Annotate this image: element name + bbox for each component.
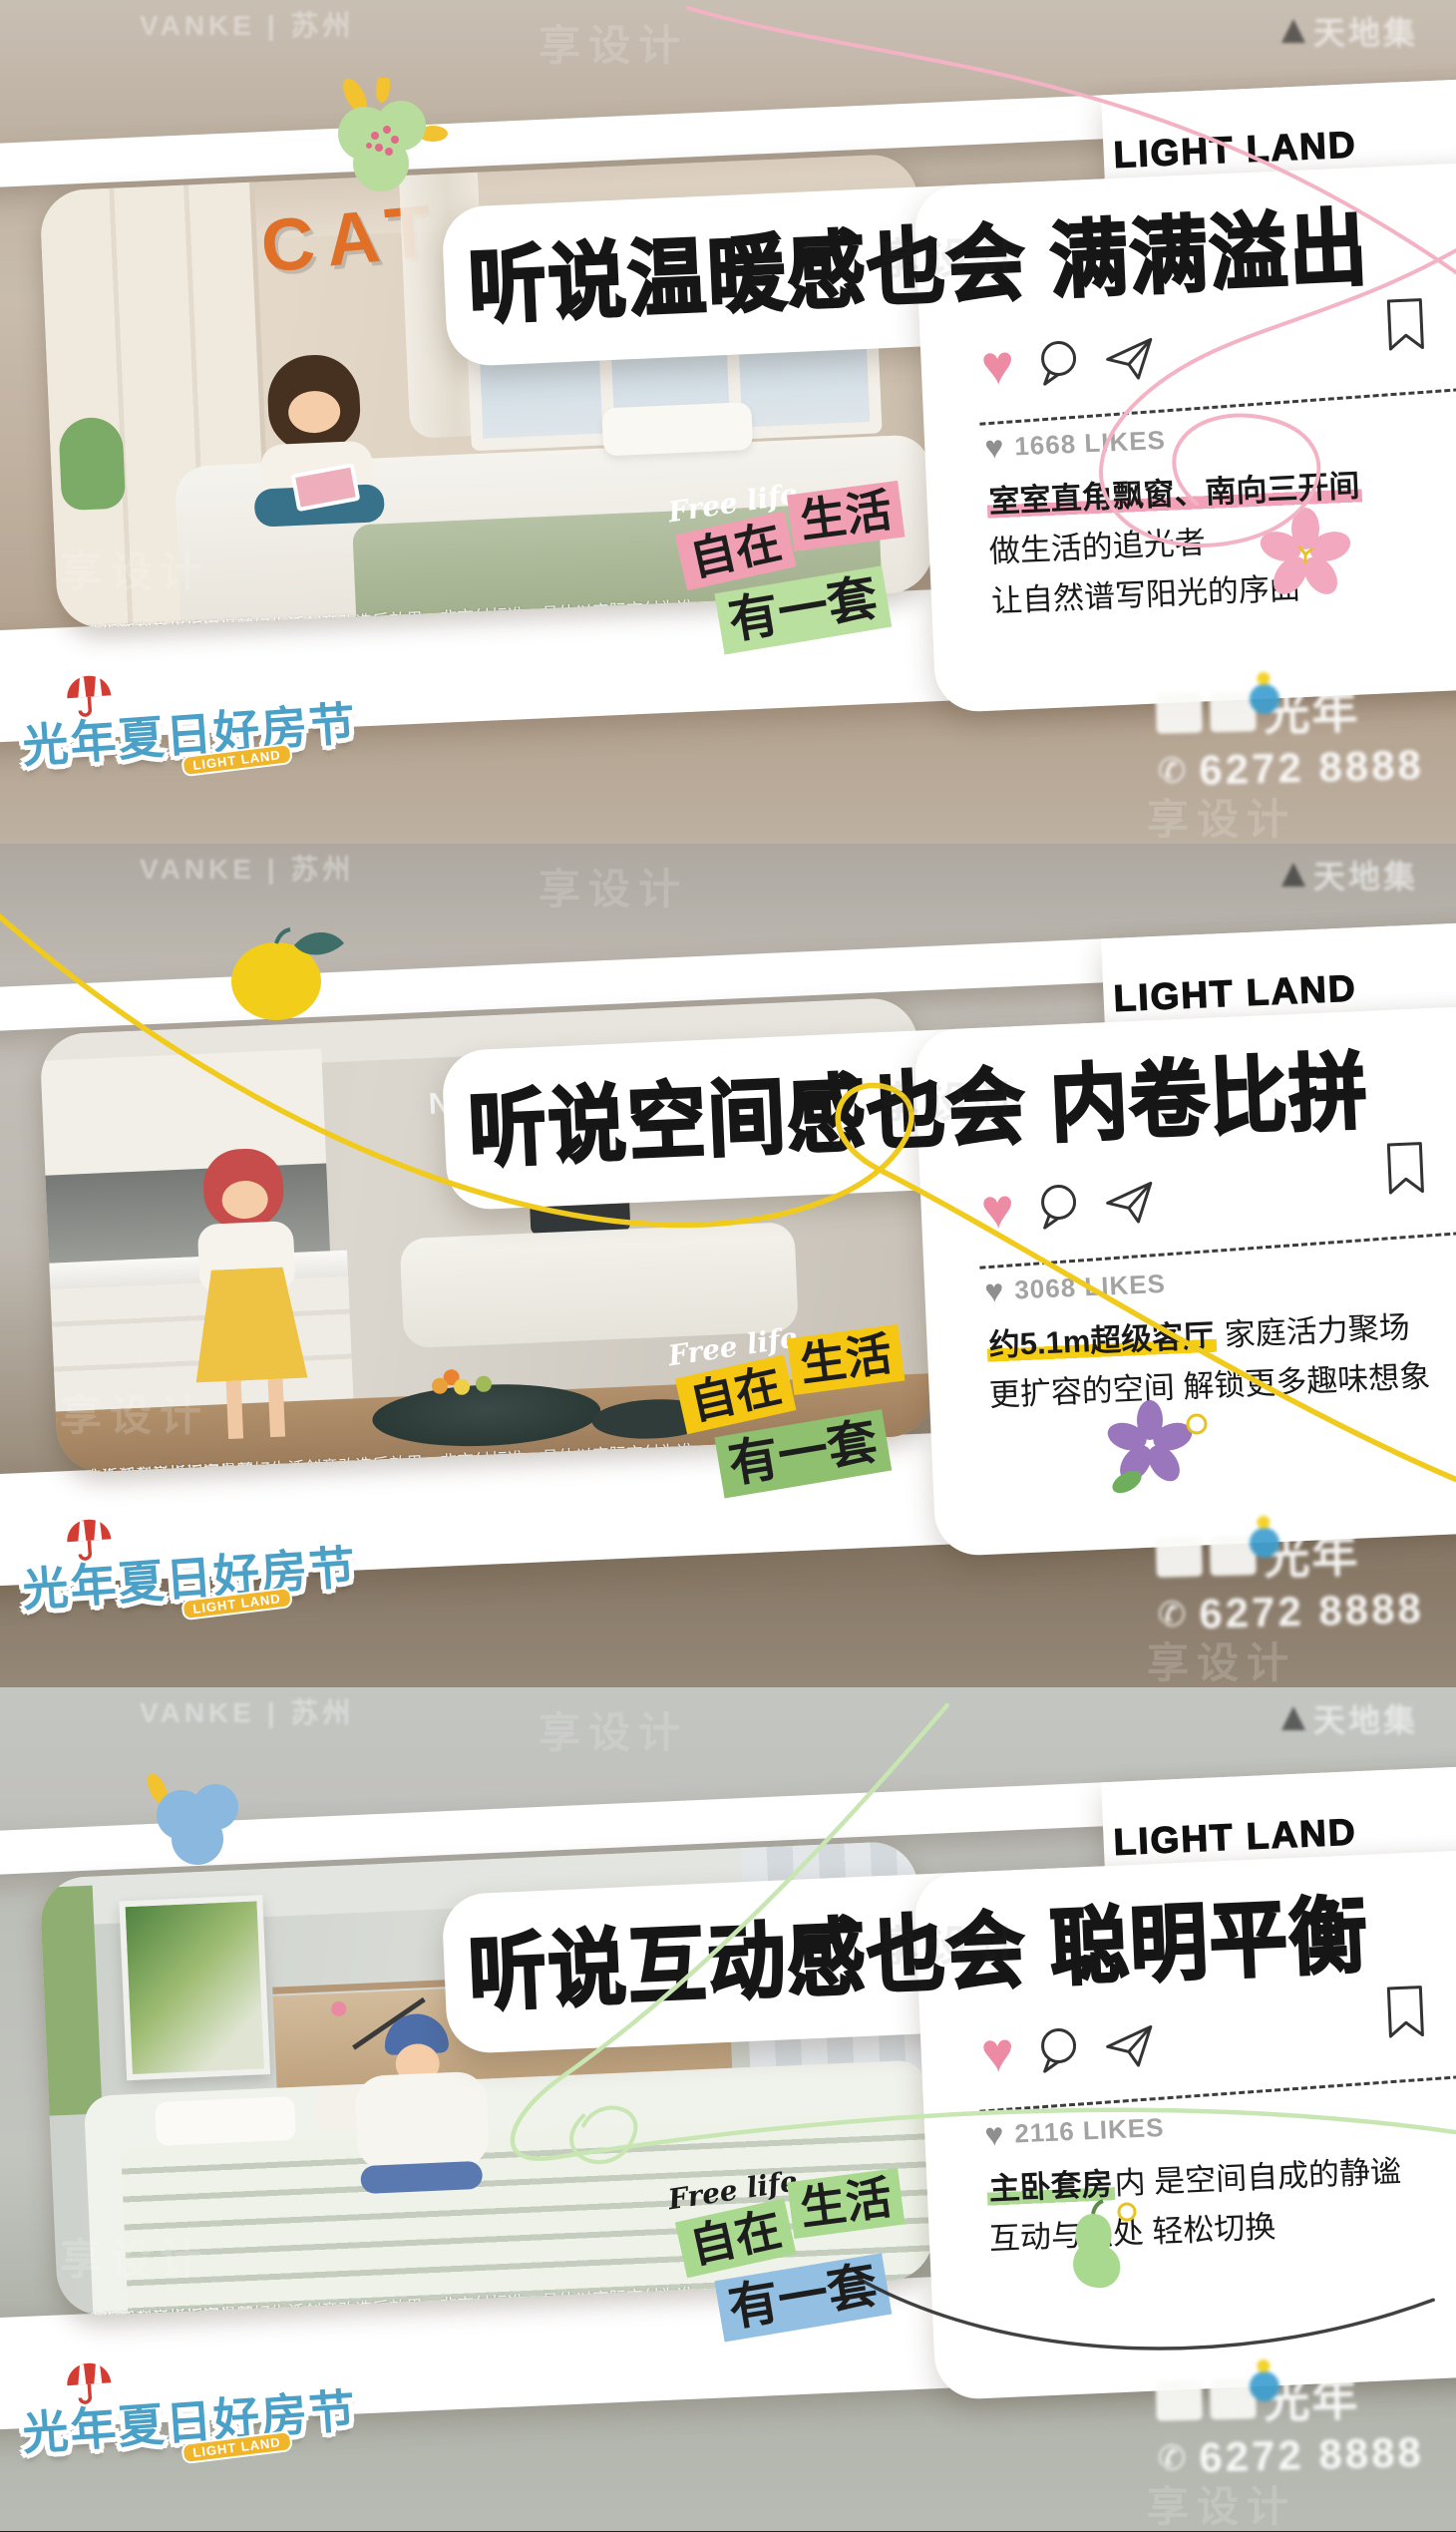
developer-logo: 光年 ✆ 6272 8888	[1156, 1524, 1448, 1639]
comment-icon[interactable]	[1035, 337, 1083, 387]
green-wall-panel	[40, 1885, 103, 2115]
brand-watermark: VANKE | 苏州	[140, 848, 354, 888]
reading-girl-illustration	[248, 352, 386, 546]
developer-logo-text: 光年	[1263, 2362, 1360, 2430]
phone-number: 6272 8888	[1199, 1585, 1425, 1638]
likes-heart-icon: ♥	[984, 1274, 1005, 1307]
corner-watermark-text: 天地集	[1313, 852, 1418, 898]
share-plane-icon[interactable]	[1103, 2022, 1157, 2070]
corner-watermark-icon	[1281, 863, 1305, 887]
like-heart-icon[interactable]: ♥	[980, 2023, 1016, 2080]
desc-rest: 家庭活力聚场	[1215, 1309, 1410, 1352]
share-plane-icon[interactable]	[1103, 335, 1157, 383]
plush-toy	[58, 416, 126, 511]
poster-banner-3: 生活创意样板间实景图 该生活创意样板间为美好生活创意改造后效果，非交付标准，具体…	[0, 1687, 1456, 2531]
developer-logo: 光年 ✆ 6272 8888	[1156, 2367, 1448, 2483]
bookmark-icon[interactable]	[1385, 296, 1425, 352]
blurred-logo-glyph	[1156, 1537, 1203, 1578]
brand-watermark: VANKE | 苏州	[140, 1691, 354, 1731]
wall-artwork	[120, 1896, 271, 2080]
umbrella-icon	[62, 670, 117, 722]
description: 室室直角飘窗、南向三开间 做生活的追光者 让自然谱写阳光的序曲	[986, 461, 1367, 626]
person-hoodie	[354, 2070, 490, 2172]
phone-number: 6272 8888	[1199, 741, 1425, 795]
social-actions: ♥	[980, 1174, 1158, 1238]
like-heart-icon[interactable]: ♥	[980, 1180, 1016, 1237]
phone-row: ✆ 6272 8888	[1157, 1584, 1447, 1639]
corner-watermark: 天地集	[1281, 8, 1418, 54]
sticker-cluster: Free life 自在 生活 有一套	[660, 2145, 947, 2337]
corner-watermark-icon	[1281, 19, 1305, 43]
poster-banner-1: CAT 生活创意样板间实景图 该生活创意样板间为美好生活创意改造后效果，非交付标…	[0, 0, 1456, 844]
girl-legs	[226, 1381, 244, 1440]
like-heart-icon[interactable]: ♥	[980, 336, 1016, 393]
bookmark-icon[interactable]	[1385, 1140, 1425, 1196]
description: 主卧套房内 是空间自成的静谧 互动与独处 轻松切换	[986, 2147, 1405, 2265]
comment-icon[interactable]	[1035, 1181, 1083, 1231]
developer-logo-row: 光年	[1156, 680, 1446, 740]
developer-logo-text: 光年	[1263, 1519, 1360, 1587]
developer-logo-row: 光年	[1156, 2367, 1446, 2427]
corner-watermark-icon	[1281, 1706, 1305, 1730]
likes-count: 3068 LIKES	[1014, 1267, 1167, 1305]
share-plane-icon[interactable]	[1103, 1179, 1157, 1227]
apron-girl-illustration	[177, 1146, 321, 1450]
likes-count: 2116 LIKES	[1014, 2111, 1165, 2149]
likes-heart-icon: ♥	[984, 2118, 1005, 2151]
likes-count: 1668 LIKES	[1014, 424, 1167, 462]
likes-heart-icon: ♥	[984, 431, 1005, 464]
corner-watermark-text: 天地集	[1313, 1695, 1418, 1741]
social-actions: ♥	[980, 2017, 1158, 2081]
social-actions: ♥	[980, 330, 1158, 394]
brand-watermark: VANKE | 苏州	[140, 4, 354, 44]
desc-highlight: 主卧套房	[986, 2166, 1115, 2207]
developer-logo-text: 光年	[1263, 675, 1360, 743]
corner-watermark: 天地集	[1281, 1695, 1418, 1741]
sticker-tag-2: 生活	[787, 481, 905, 551]
corner-watermark: 天地集	[1281, 852, 1418, 898]
pillow	[602, 402, 754, 457]
phone-row: ✆ 6272 8888	[1157, 2427, 1447, 2483]
logo-dot-icon	[1257, 1516, 1270, 1529]
sticker-tag-2: 生活	[787, 2168, 905, 2239]
blurred-logo-glyph	[1156, 2380, 1203, 2421]
pillows	[155, 2096, 297, 2146]
umbrella-icon	[62, 2357, 117, 2409]
phone-icon: ✆	[1157, 1595, 1190, 1635]
corner-watermark-text: 天地集	[1313, 8, 1418, 54]
sticker-cluster: Free life 自在 生活 有一套	[660, 458, 947, 649]
phone-icon: ✆	[1157, 751, 1190, 792]
poster-banner-2: NOT TO FEEL 生活创意样板间实景图 该生活创意样板间为美好生活创意改造…	[0, 844, 1456, 1687]
desc-highlight: 室室直角飘窗、南向三开间	[986, 468, 1362, 519]
phone-icon: ✆	[1157, 2438, 1190, 2479]
logo-dot-icon	[1257, 2359, 1270, 2372]
developer-logo-row: 光年	[1156, 1524, 1446, 1584]
sticker-tag-2: 生活	[787, 1324, 905, 1395]
desc-rest: 内 是空间自成的静谧	[1114, 2154, 1402, 2202]
blurred-logo-glyph	[1156, 693, 1203, 734]
person-legs	[360, 2160, 483, 2193]
logo-dot-icon	[1257, 672, 1270, 685]
description: 约5.1m超级客厅 家庭活力聚场 更扩容的空间 解锁更多趣味想象	[986, 1301, 1432, 1420]
bookmark-icon[interactable]	[1385, 1984, 1425, 2039]
desc-highlight: 约5.1m超级客厅	[986, 1318, 1217, 1363]
phone-row: ✆ 6272 8888	[1157, 740, 1447, 796]
phone-number: 6272 8888	[1199, 2428, 1425, 2482]
developer-logo: 光年 ✆ 6272 8888	[1156, 680, 1448, 796]
comment-icon[interactable]	[1035, 2024, 1083, 2074]
umbrella-icon	[62, 1514, 117, 1566]
teaser-pom	[331, 2000, 347, 2016]
sticker-cluster: Free life 自在 生活 有一套	[660, 1301, 947, 1493]
